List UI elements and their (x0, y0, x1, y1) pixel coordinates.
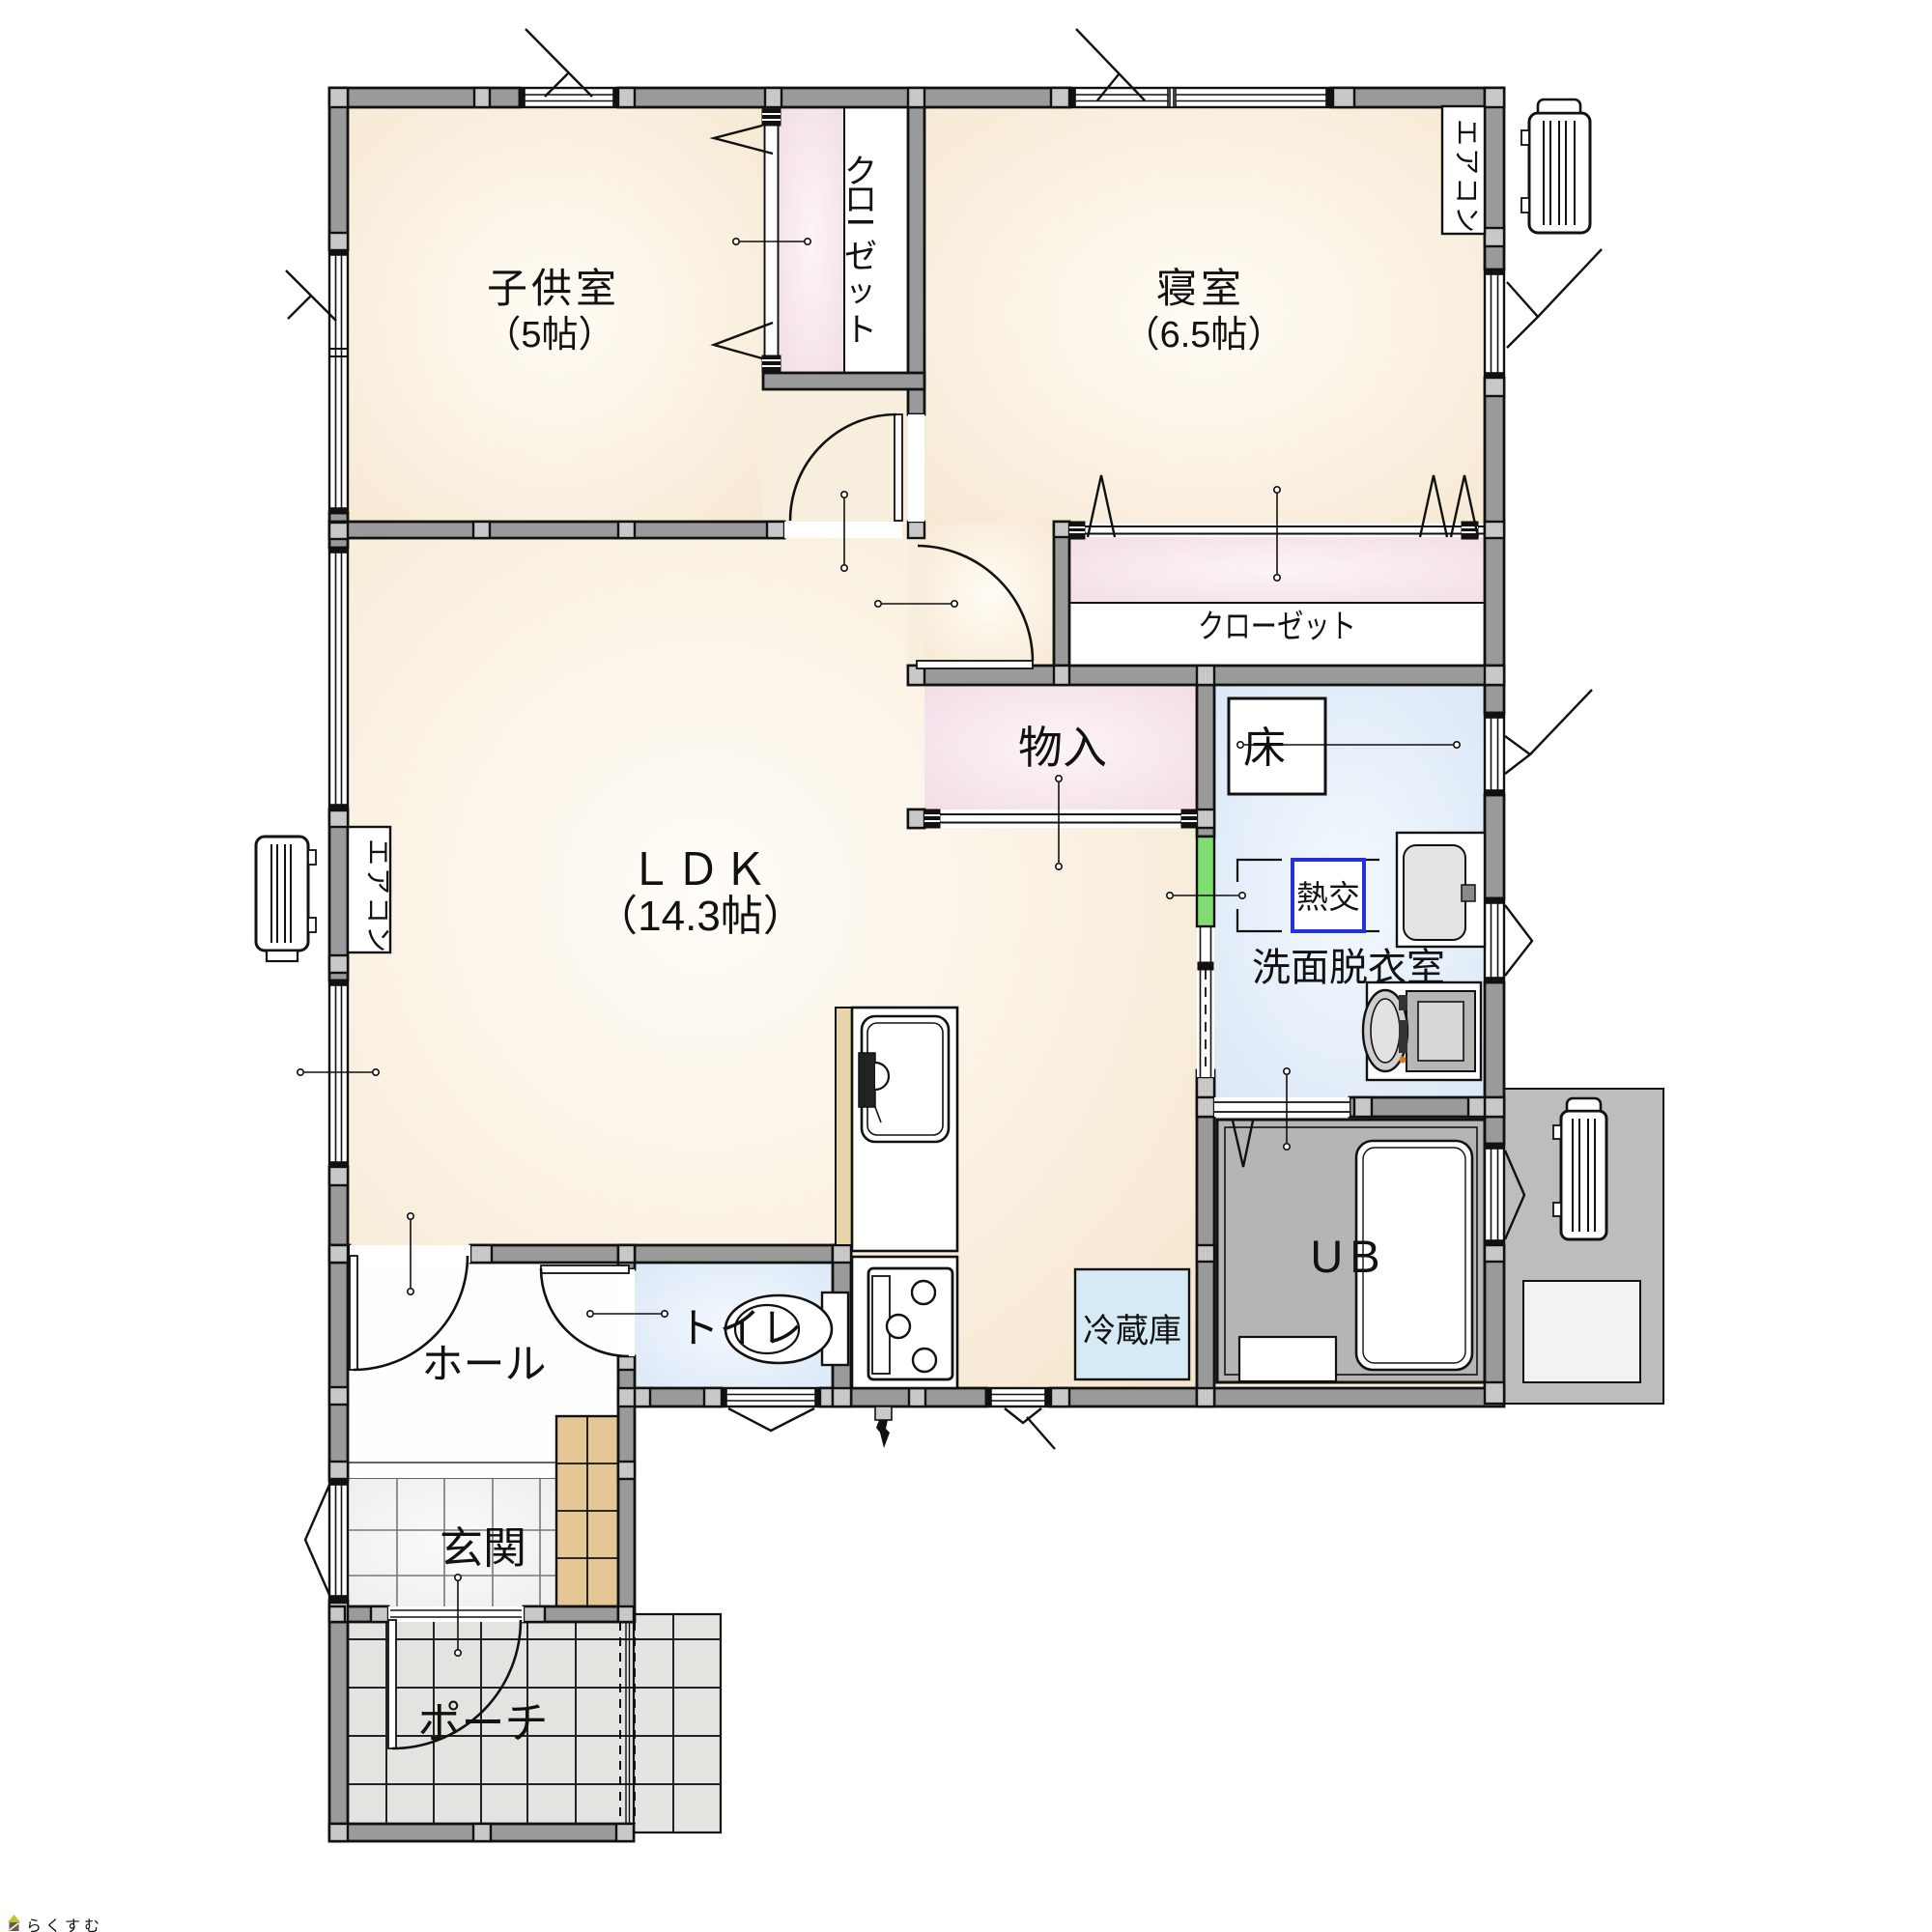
svg-text:子供室: 子供室 (487, 266, 620, 311)
svg-text:ト: ト (844, 312, 877, 349)
svg-text:寝室: 寝室 (1156, 266, 1245, 311)
svg-text:エアコン: エアコン (363, 838, 393, 954)
svg-text:ＬＤＫ: ＬＤＫ (629, 844, 771, 895)
svg-text:ゼ: ゼ (844, 239, 877, 275)
svg-text:（6.5帖）: （6.5帖） (1123, 315, 1285, 355)
svg-text:クローゼット: クローゼット (1198, 609, 1356, 645)
svg-text:熱交: 熱交 (1296, 879, 1360, 915)
svg-text:物入: 物入 (1018, 723, 1107, 773)
svg-text:（5帖）: （5帖） (484, 315, 614, 355)
svg-text:ッ: ッ (846, 274, 876, 308)
svg-text:ポーチ: ポーチ (417, 1698, 548, 1747)
svg-text:玄関: 玄関 (440, 1523, 526, 1573)
svg-text:床: 床 (1243, 724, 1286, 772)
svg-text:ロ: ロ (844, 182, 877, 218)
svg-text:ホール: ホール (422, 1342, 547, 1388)
svg-text:冷蔵庫: 冷蔵庫 (1083, 1313, 1181, 1350)
svg-text:エアコン: エアコン (1452, 119, 1482, 235)
svg-text:（14.3帖）: （14.3帖） (595, 893, 806, 940)
svg-text:洗面脱衣室: 洗面脱衣室 (1252, 947, 1445, 989)
svg-text:トイレ: トイレ (678, 1306, 803, 1352)
svg-text:らくすむ: らくすむ (26, 1918, 103, 1932)
svg-text:UB: UB (1310, 1231, 1386, 1282)
